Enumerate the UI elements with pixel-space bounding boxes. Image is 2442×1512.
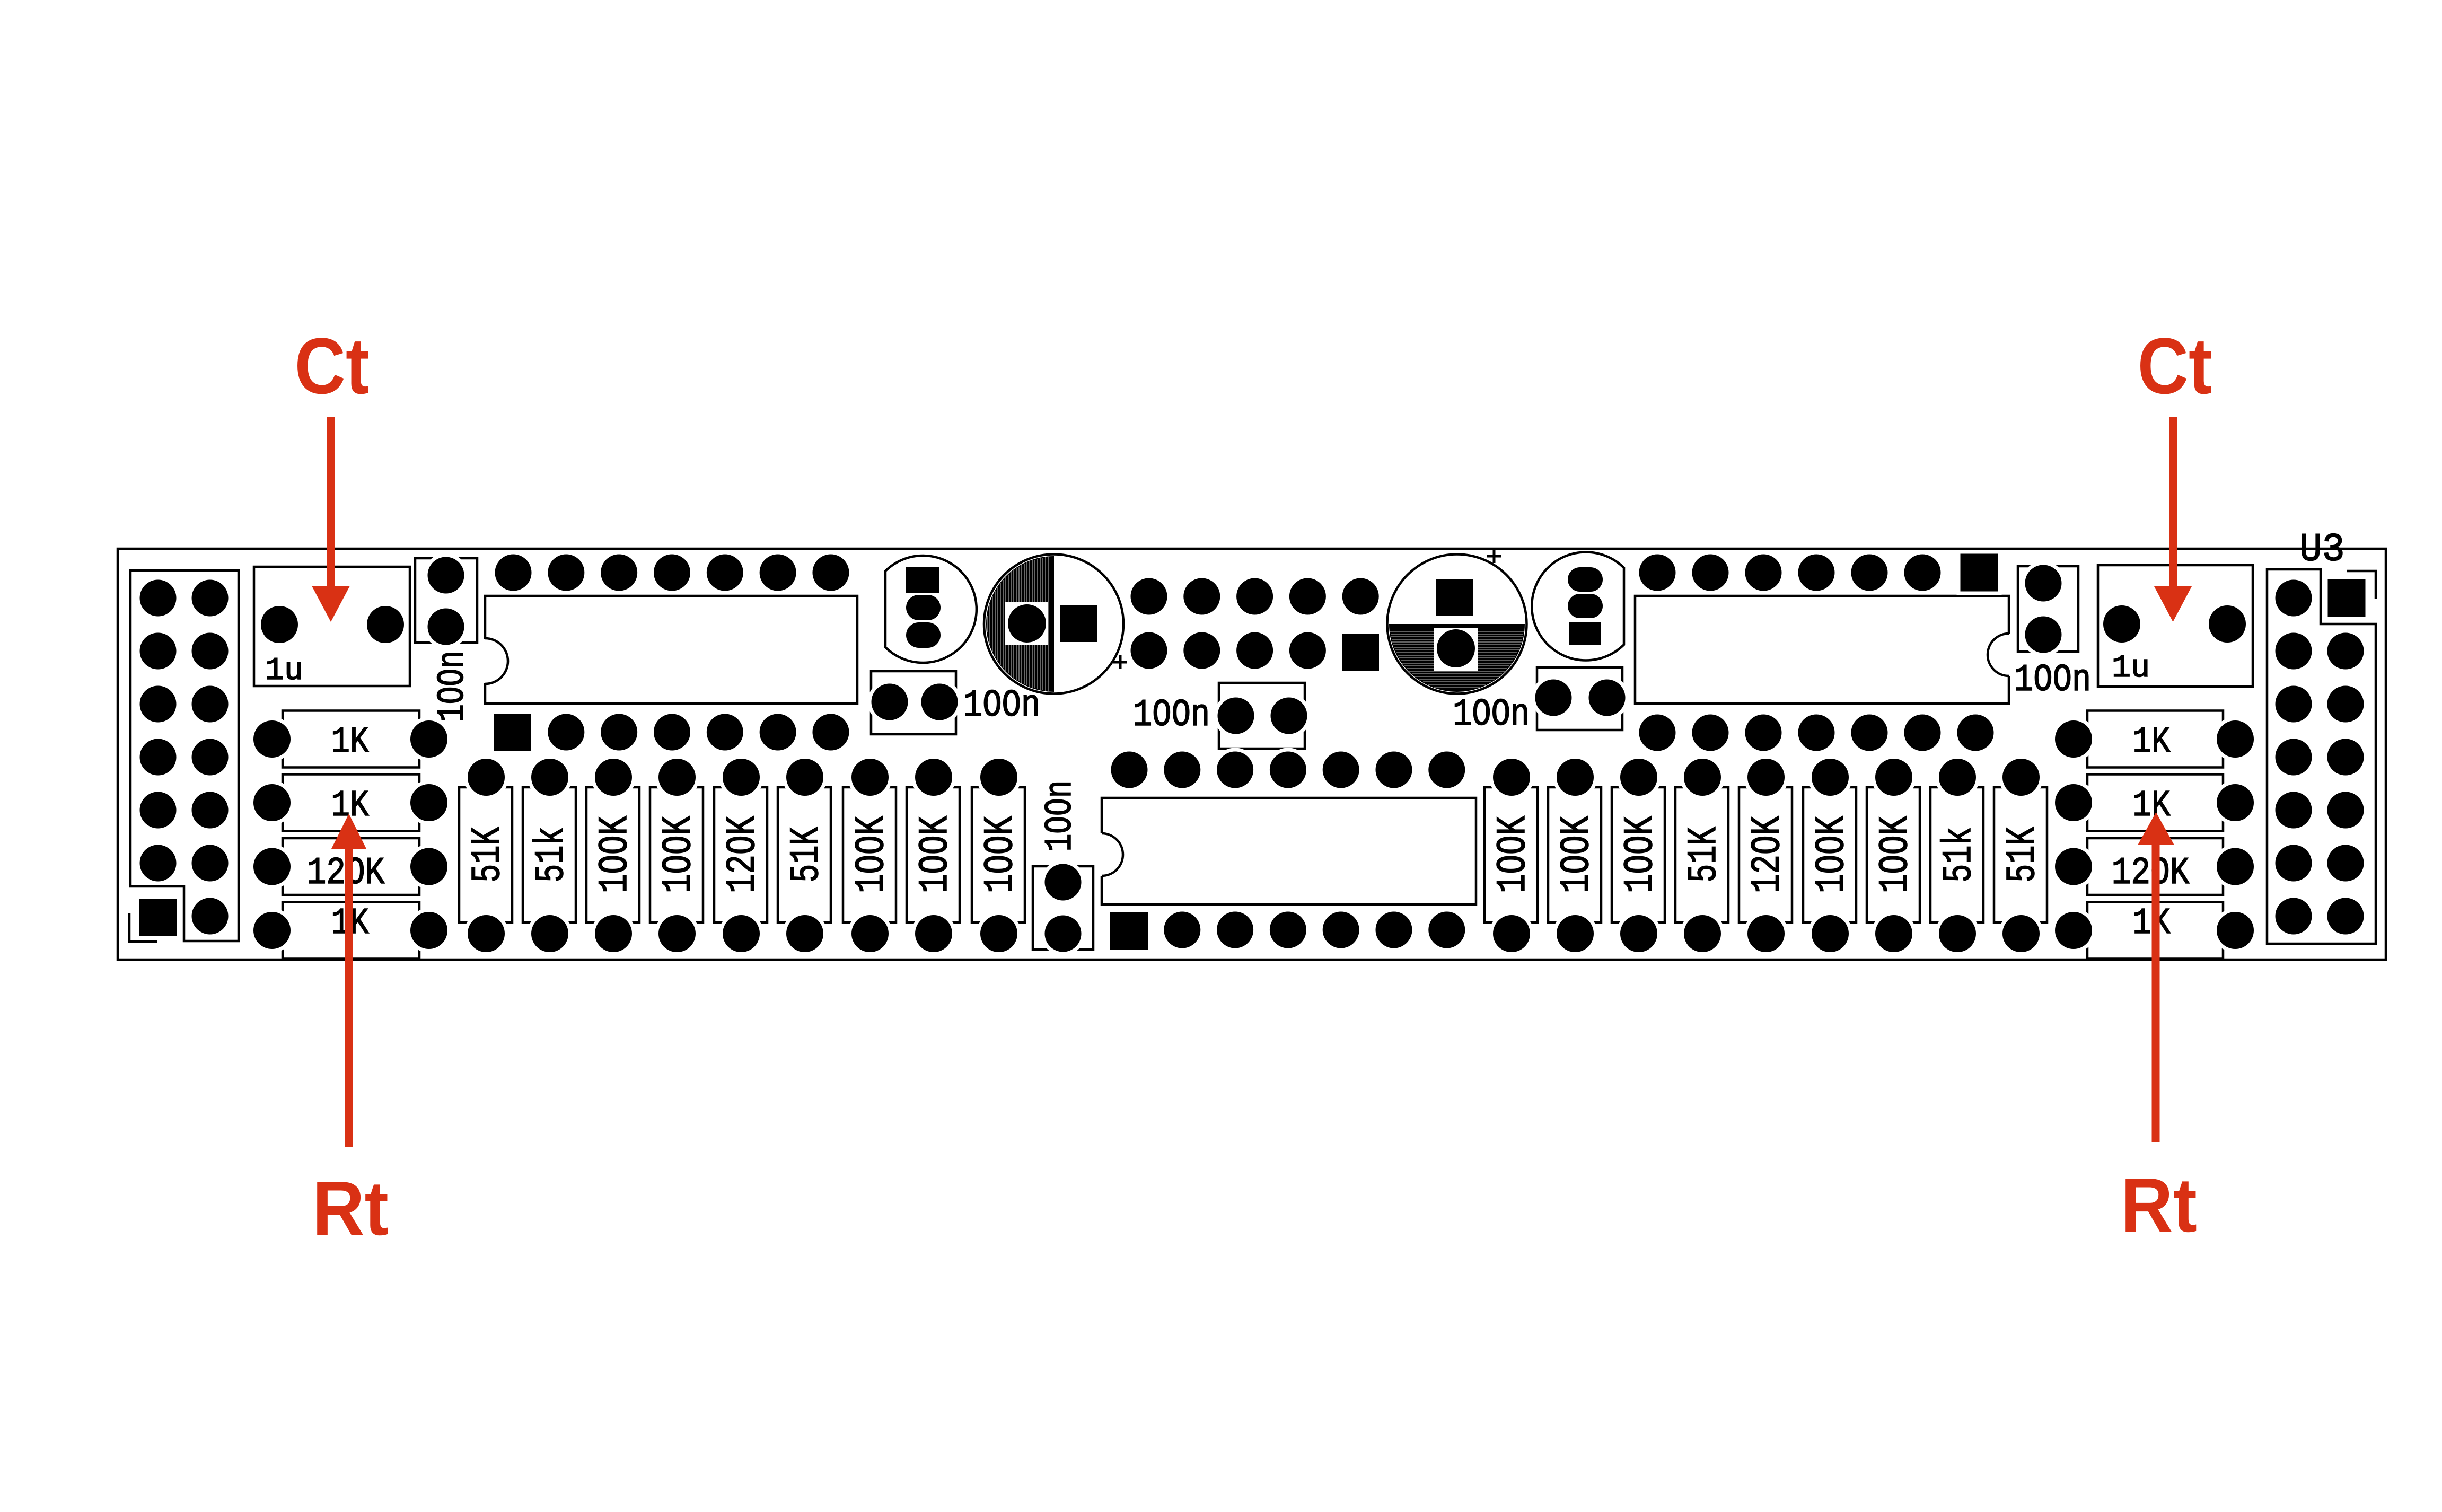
svg-text:1OOK: 1OOK — [912, 816, 959, 893]
svg-text:1K: 1K — [2132, 902, 2170, 945]
svg-text:51K: 51K — [2000, 827, 2046, 883]
svg-text:12OK: 12OK — [720, 816, 767, 893]
svg-text:Ct: Ct — [2138, 322, 2212, 411]
svg-text:51K: 51K — [1681, 827, 1728, 883]
svg-text:1OOK: 1OOK — [1618, 816, 1664, 893]
svg-text:12OK: 12OK — [1745, 816, 1791, 893]
svg-text:1OOn: 1OOn — [1133, 693, 1210, 736]
svg-text:1OOK: 1OOK — [849, 816, 895, 893]
svg-text:Ct: Ct — [295, 322, 370, 411]
svg-text:1OOK: 1OOK — [1809, 816, 1856, 893]
svg-text:51k: 51k — [1936, 827, 1983, 882]
svg-text:51K: 51K — [465, 827, 512, 883]
svg-text:1OOn: 1OOn — [1453, 693, 1530, 736]
svg-text:1OOK: 1OOK — [592, 816, 639, 893]
svg-text:1OOK: 1OOK — [656, 816, 702, 893]
svg-text:Rt: Rt — [312, 1165, 389, 1251]
svg-text:1OOK: 1OOK — [1490, 816, 1537, 893]
svg-text:1OOK: 1OOK — [1554, 816, 1601, 893]
svg-text:1u: 1u — [265, 653, 303, 689]
svg-text:1K: 1K — [2132, 721, 2170, 763]
svg-text:51k: 51k — [529, 827, 575, 882]
svg-text:1OOK: 1OOK — [978, 816, 1024, 893]
svg-text:51K: 51K — [784, 827, 830, 883]
svg-text:U3: U3 — [2299, 527, 2344, 572]
svg-text:1u: 1u — [2112, 650, 2150, 687]
svg-text:1OOn: 1OOn — [432, 650, 475, 722]
svg-text:1OOn: 1OOn — [2014, 658, 2091, 701]
svg-text:12OK: 12OK — [2112, 852, 2190, 895]
svg-text:1OOn: 1OOn — [1039, 780, 1082, 852]
svg-text:1K: 1K — [331, 721, 368, 763]
svg-text:1OOn: 1OOn — [963, 684, 1040, 727]
svg-text:Rt: Rt — [2121, 1162, 2197, 1248]
svg-text:1OOK: 1OOK — [1873, 816, 1919, 893]
